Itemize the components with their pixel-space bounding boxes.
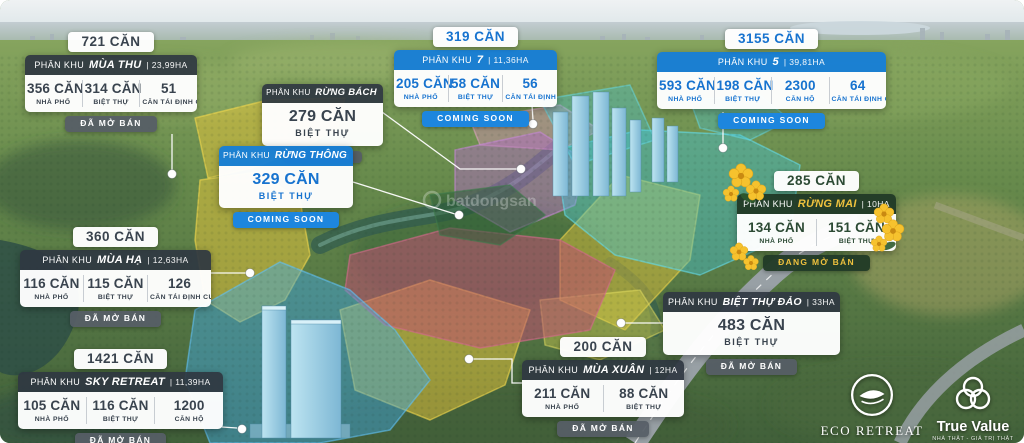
zone-card-phan-khu-5: 3155 CĂN PHÂN KHU 5 | 39,81HA 593 CĂN NH… (657, 29, 886, 129)
stat: 483 CĂN BIỆT THỰ (663, 316, 840, 349)
zone-header: PHÂN KHU BIỆT THỰ ĐẢO | 33HA (663, 292, 840, 312)
stat: 126 CĂN TÁI ĐỊNH CƯ (147, 275, 211, 302)
stat-label: BIỆT THỰ (85, 99, 138, 107)
zone-name: MÙA XUÂN (583, 364, 644, 376)
zone-name: 7 (477, 54, 483, 66)
zone-prefix: PHÂN KHU (223, 150, 270, 160)
stat: 134 CĂN NHÀ PHỐ (737, 219, 816, 246)
zone-panel: PHÂN KHU RỪNG THÔNG 329 CĂN BIỆT THỰ (219, 146, 353, 208)
zone-header: PHÂN KHU 5 | 39,81HA (657, 52, 886, 73)
zone-prefix: PHÂN KHU (422, 55, 472, 65)
stat: 56 CĂN TÁI ĐỊNH CƯ (502, 75, 557, 102)
zone-total: 360 CĂN (73, 227, 158, 247)
zone-name: RỪNG BÁCH (315, 87, 377, 98)
zone-total: 1421 CĂN (74, 349, 167, 369)
stat: 2300 CĂN HỘ (771, 77, 829, 104)
zone-status-badge: ĐÃ MỞ BÁN (65, 116, 156, 132)
zone-stats: 593 CĂN NHÀ PHỐ 198 CĂN BIỆT THỰ 2300 CĂ… (657, 72, 886, 109)
stat-value: 279 CĂN (264, 108, 381, 126)
eco-retreat-logo-text: ECO RETREAT (818, 423, 926, 439)
stat-label: BIỆT THỰ (717, 96, 770, 104)
stat-value: 58 CĂN (451, 76, 501, 92)
zone-area: | 39,81HA (784, 57, 825, 67)
zone-stats: 279 CĂN BIỆT THỰ (262, 103, 383, 146)
zone-status-badge: ĐÃ MỞ BÁN (706, 359, 797, 375)
zone-panel: PHÂN KHU MÙA XUÂN | 12HA 211 CĂN NHÀ PHỐ… (522, 360, 684, 418)
stat-label: CĂN TÁI ĐỊNH CƯ (142, 99, 195, 107)
stat-value: 483 CĂN (665, 317, 838, 335)
true-value-logo-text: True Value (926, 419, 1020, 435)
stat-label: NHÀ PHỐ (524, 404, 601, 412)
zone-card-biet-thu-dao: PHÂN KHU BIỆT THỰ ĐẢO | 33HA 483 CĂN BIỆ… (663, 292, 840, 375)
zone-header: PHÂN KHU RỪNG THÔNG (219, 146, 353, 166)
zone-panel: PHÂN KHU 7 | 11,36HA 205 CĂN NHÀ PHỐ 58 … (394, 50, 557, 108)
zone-area: | 11,36HA (488, 55, 529, 65)
stat-value: 105 CĂN (20, 398, 84, 414)
zone-card-mua-thu: 721 CĂN PHÂN KHU MÙA THU | 23,99HA 356 C… (25, 32, 197, 132)
zone-card-phan-khu-7: 319 CĂN PHÂN KHU 7 | 11,36HA 205 CĂN NHÀ… (394, 27, 557, 127)
stat: 198 CĂN BIỆT THỰ (714, 77, 772, 104)
stat-label: BIỆT THỰ (606, 404, 683, 412)
zone-status-badge: ĐÃ MỞ BÁN (70, 311, 161, 327)
zone-panel: PHÂN KHU 5 | 39,81HA 593 CĂN NHÀ PHỐ 198… (657, 52, 886, 110)
zone-stats: 105 CĂN NHÀ PHỐ 116 CĂN BIỆT THỰ 1200 CĂ… (18, 392, 223, 429)
zone-status-badge: COMING SOON (422, 111, 529, 127)
stat: 279 CĂN BIỆT THỰ (262, 107, 383, 140)
stat-label: NHÀ PHỐ (739, 238, 814, 246)
stat-label: BIỆT THỰ (665, 337, 838, 347)
stat-label: BIỆT THỰ (221, 191, 351, 201)
zone-panel: PHÂN KHU RỪNG MAI | 10HA 134 CĂN NHÀ PHỐ… (737, 194, 896, 252)
true-value-logo: True Value NHÀ THẬT - GIÁ TRỊ THẬT (926, 374, 1020, 442)
zone-header: PHÂN KHU MÙA HẠ | 12,63HA (20, 250, 211, 271)
zone-card-mua-ha: 360 CĂN PHÂN KHU MÙA HẠ | 12,63HA 116 CĂ… (20, 227, 211, 327)
zone-prefix: PHÂN KHU (266, 88, 311, 97)
zone-header: PHÂN KHU RỪNG BÁCH (262, 84, 383, 103)
zone-stats: 329 CĂN BIỆT THỰ (219, 166, 353, 209)
stat: 314 CĂN BIỆT THỰ (82, 80, 140, 107)
stat-label: NHÀ PHỐ (22, 294, 81, 302)
zone-card-sky-retreat: 1421 CĂN PHÂN KHU SKY RETREAT | 11,39HA … (18, 349, 223, 443)
stat-value: 1200 (157, 398, 221, 414)
zone-prefix: PHÂN KHU (42, 255, 92, 265)
zone-stats: 205 CĂN NHÀ PHỐ 58 CĂN BIỆT THỰ 56 CĂN T… (394, 70, 557, 107)
zone-card-rung-mai: 285 CĂN PHÂN KHU RỪNG MAI | 10HA 134 CĂN… (737, 171, 896, 271)
zone-header: PHÂN KHU MÙA XUÂN | 12HA (522, 360, 684, 381)
stat-label: NHÀ PHỐ (659, 96, 712, 104)
stat-label: CĂN HỘ (774, 96, 827, 104)
zone-header: PHÂN KHU MÙA THU | 23,99HA (25, 55, 197, 76)
stat-label: BIỆT THỰ (451, 94, 501, 102)
stat-value: 151 CĂN (819, 220, 894, 236)
stat-value: 356 CĂN (27, 81, 80, 97)
zone-panel: PHÂN KHU BIỆT THỰ ĐẢO | 33HA 483 CĂN BIỆ… (663, 292, 840, 355)
zone-area: | 12,63HA (147, 255, 188, 265)
stat: 116 CĂN BIỆT THỰ (86, 397, 155, 424)
zone-header: PHÂN KHU SKY RETREAT | 11,39HA (18, 372, 223, 393)
zone-name: RỪNG THÔNG (275, 150, 347, 161)
stat: 205 CĂN NHÀ PHỐ (394, 75, 448, 102)
stat-value: 593 CĂN (659, 78, 712, 94)
stat-value: 88 CĂN (606, 386, 683, 402)
zone-status-badge: COMING SOON (233, 212, 340, 228)
stat-label: CĂN TÁI ĐỊNH CƯ (150, 294, 209, 302)
stat-value: 115 CĂN (86, 276, 145, 292)
eco-retreat-logo: ECO RETREAT (818, 372, 926, 439)
zone-card-mua-xuan: 200 CĂN PHÂN KHU MÙA XUÂN | 12HA 211 CĂN… (522, 337, 684, 437)
zone-prefix: PHÂN KHU (30, 377, 80, 387)
zone-area: | 10HA (862, 199, 890, 209)
zone-status-badge: ĐANG MỞ BÁN (763, 255, 870, 271)
zone-status-badge: ĐÃ MỞ BÁN (75, 433, 166, 443)
stat: 64 CĂN TÁI ĐỊNH CƯ (829, 77, 887, 104)
zone-stats: 134 CĂN NHÀ PHỐ 151 CĂN BIỆT THỰ (737, 214, 896, 251)
zone-name: MÙA HẠ (97, 254, 142, 266)
stat-label: BIỆT THỰ (819, 238, 894, 246)
zone-name: MÙA THU (89, 59, 141, 71)
zone-panel: PHÂN KHU RỪNG BÁCH 279 CĂN BIỆT THỰ (262, 84, 383, 146)
stat-label: BIỆT THỰ (264, 128, 381, 138)
stat-value: 198 CĂN (717, 78, 770, 94)
watermark-text: batdongsan (446, 193, 537, 210)
zone-total: 319 CĂN (433, 27, 518, 47)
stat-label: CĂN TÁI ĐỊNH CƯ (505, 94, 555, 102)
zone-header: PHÂN KHU 7 | 11,36HA (394, 50, 557, 71)
stat: 329 CĂN BIỆT THỰ (219, 170, 353, 203)
stat: 1200 CĂN HỘ (154, 397, 223, 424)
stat-label: NHÀ PHỐ (27, 99, 80, 107)
zone-card-rung-thong: PHÂN KHU RỪNG THÔNG 329 CĂN BIỆT THỰ COM… (219, 146, 353, 228)
zone-header: PHÂN KHU RỪNG MAI | 10HA (737, 194, 896, 215)
stat-value: 211 CĂN (524, 386, 601, 402)
zone-status-badge: ĐÃ MỞ BÁN (557, 421, 648, 437)
zone-stats: 356 CĂN NHÀ PHỐ 314 CĂN BIỆT THỰ 51 CĂN … (25, 75, 197, 112)
zone-prefix: PHÂN KHU (34, 60, 84, 70)
stat-label: CĂN TÁI ĐỊNH CƯ (832, 96, 885, 104)
eco-retreat-logo-icon (849, 372, 895, 418)
stat-value: 116 CĂN (89, 398, 153, 414)
zone-prefix: PHÂN KHU (528, 365, 578, 375)
stat-value: 116 CĂN (22, 276, 81, 292)
stat-value: 126 (150, 276, 209, 292)
stat: 105 CĂN NHÀ PHỐ (18, 397, 86, 424)
stat-value: 56 (505, 76, 555, 92)
stat: 116 CĂN NHÀ PHỐ (20, 275, 83, 302)
stat: 151 CĂN BIỆT THỰ (816, 219, 896, 246)
stat-label: BIỆT THỰ (86, 294, 145, 302)
zone-stats: 483 CĂN BIỆT THỰ (663, 312, 840, 355)
stat: 51 CĂN TÁI ĐỊNH CƯ (139, 80, 197, 107)
stat-label: NHÀ PHỐ (396, 94, 446, 102)
zone-panel: PHÂN KHU MÙA HẠ | 12,63HA 116 CĂN NHÀ PH… (20, 250, 211, 308)
zone-prefix: PHÂN KHU (718, 57, 768, 67)
stat-value: 64 (832, 78, 885, 94)
stat-value: 314 CĂN (85, 81, 138, 97)
masterplan-screenshot: batdongsan 721 CĂN (0, 0, 1024, 443)
zone-name: 5 (773, 56, 779, 68)
zone-panel: PHÂN KHU SKY RETREAT | 11,39HA 105 CĂN N… (18, 372, 223, 430)
stat: 593 CĂN NHÀ PHỐ (657, 77, 714, 104)
stat-value: 205 CĂN (396, 76, 446, 92)
stat-label: BIỆT THỰ (89, 416, 153, 424)
stat-value: 329 CĂN (221, 171, 351, 189)
stat-value: 51 (142, 81, 195, 97)
zone-name: BIỆT THỰ ĐẢO (723, 296, 802, 308)
zone-stats: 211 CĂN NHÀ PHỐ 88 CĂN BIỆT THỰ (522, 380, 684, 417)
true-value-logo-tagline: NHÀ THẬT - GIÁ TRỊ THẬT (926, 436, 1020, 442)
stat: 58 CĂN BIỆT THỰ (448, 75, 503, 102)
zone-total: 3155 CĂN (725, 29, 818, 49)
stat: 115 CĂN BIỆT THỰ (83, 275, 147, 302)
stat-value: 2300 (774, 78, 827, 94)
zone-prefix: PHÂN KHU (743, 199, 793, 209)
zone-total: 200 CĂN (560, 337, 645, 357)
zone-area: | 33HA (807, 297, 835, 307)
stat: 356 CĂN NHÀ PHỐ (25, 80, 82, 107)
zone-prefix: PHÂN KHU (668, 297, 718, 307)
stat-label: CĂN HỘ (157, 416, 221, 424)
zone-area: | 23,99HA (146, 60, 187, 70)
zone-total: 721 CĂN (68, 32, 153, 52)
zone-total: 285 CĂN (774, 171, 859, 191)
stat: 211 CĂN NHÀ PHỐ (522, 385, 603, 412)
zone-area: | 11,39HA (170, 377, 211, 387)
stat-label: NHÀ PHỐ (20, 416, 84, 424)
zone-name: RỪNG MAI (798, 198, 857, 210)
zone-name: SKY RETREAT (85, 376, 165, 388)
stat: 88 CĂN BIỆT THỰ (603, 385, 685, 412)
stat-value: 134 CĂN (739, 220, 814, 236)
true-value-logo-icon (952, 374, 994, 414)
zone-status-badge: COMING SOON (718, 113, 825, 129)
zone-stats: 116 CĂN NHÀ PHỐ 115 CĂN BIỆT THỰ 126 CĂN… (20, 270, 211, 307)
zone-panel: PHÂN KHU MÙA THU | 23,99HA 356 CĂN NHÀ P… (25, 55, 197, 113)
